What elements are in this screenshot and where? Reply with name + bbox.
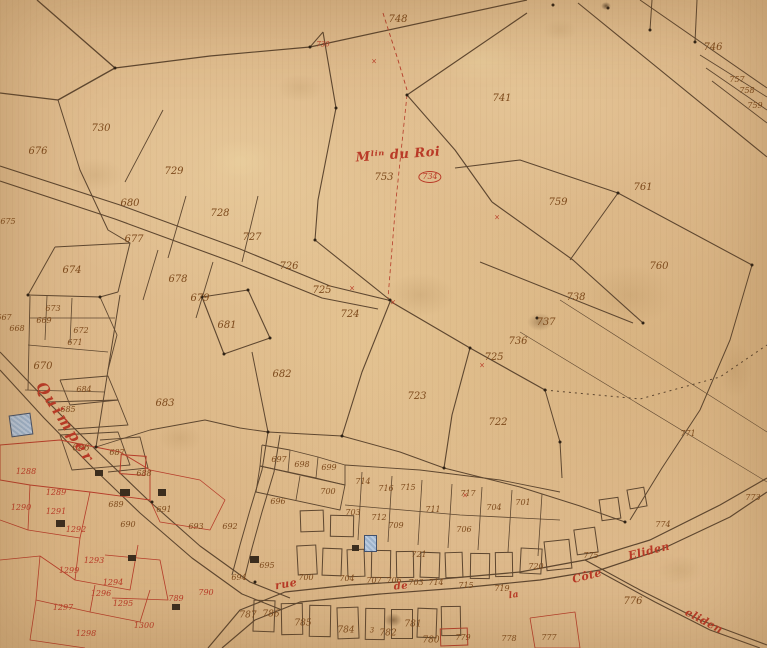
survey-point	[552, 4, 555, 7]
parcel-label: 714	[428, 579, 443, 587]
paper-stain	[158, 423, 202, 453]
parcel-label: 730	[316, 42, 329, 49]
parcel-label: 786	[262, 611, 279, 620]
survey-point	[314, 239, 317, 242]
survey-point	[642, 322, 645, 325]
survey-point	[151, 501, 154, 504]
boundary-line	[168, 196, 186, 258]
house-outline	[495, 552, 513, 577]
parcel-label: 1298	[76, 630, 96, 638]
paper-stain	[657, 555, 703, 585]
boundary-line	[585, 560, 767, 645]
paper-stain	[585, 265, 675, 325]
survey-point	[95, 446, 98, 449]
parcel-label: 689	[108, 501, 123, 509]
survey-point	[335, 107, 338, 110]
parcel-label: 711	[425, 506, 440, 514]
boundary-line	[695, 0, 697, 42]
boundary-line	[268, 432, 342, 436]
parcel-label: 670	[33, 362, 52, 372]
survey-point	[269, 337, 272, 340]
parcel-label: 730	[91, 124, 110, 134]
building-dark	[158, 489, 166, 496]
building-dark	[128, 555, 136, 561]
parcel-label: 1290	[11, 504, 31, 512]
parcel-label: 706	[456, 526, 471, 534]
parcel-label: 709	[388, 522, 403, 530]
parcel-label: 779	[455, 634, 470, 642]
parcel-label: 759	[747, 102, 762, 110]
boundary-line	[480, 262, 633, 323]
parcel-label: 784	[337, 627, 354, 636]
boundary-line	[70, 298, 72, 343]
parcel-label: 707	[366, 577, 381, 585]
building-dark	[95, 470, 103, 476]
parcel-label: 677	[124, 235, 143, 245]
parcel-label: 667	[0, 314, 12, 322]
boundary-line	[448, 484, 452, 548]
parcel-label: 696	[270, 498, 285, 506]
boundary-line	[37, 0, 115, 68]
building-dark	[250, 556, 259, 563]
cadastral-map: 7487467577587597417306767297537347306807…	[0, 0, 767, 648]
survey-point	[617, 192, 620, 195]
house-outline	[470, 553, 490, 579]
parcel-label: 782	[379, 630, 396, 639]
survey-point	[544, 389, 547, 392]
boundary-line	[28, 292, 118, 297]
parcel-label: 681	[217, 321, 236, 331]
parcel-label: 704	[486, 504, 501, 512]
survey-point	[624, 521, 627, 524]
parcel-label: 738	[566, 293, 585, 303]
boundary-line	[342, 436, 444, 468]
parcel-label: 780	[422, 637, 439, 646]
parcel-label: 675	[0, 218, 15, 226]
survey-point	[247, 289, 250, 292]
parcel-label: 1289	[46, 489, 66, 497]
parcel-label: 725	[484, 353, 503, 363]
boundary-line	[388, 95, 407, 298]
parcel-label: ×	[349, 286, 355, 293]
boundary-line	[0, 166, 388, 300]
parcel-label: 673	[45, 305, 60, 313]
boundary-line	[545, 390, 562, 478]
boundary-line	[196, 262, 213, 318]
road-label: de	[393, 581, 408, 592]
parcel-label: 1297	[53, 604, 73, 612]
parcel-label: 3	[370, 628, 374, 635]
building-dark	[352, 545, 359, 551]
parcel-label: 776	[623, 597, 642, 607]
boundary-line	[115, 47, 310, 68]
survey-point	[751, 264, 754, 267]
parcel-label: 722	[488, 418, 507, 428]
parcel-label: 1288	[16, 468, 36, 476]
survey-point	[27, 294, 30, 297]
road-label: Côte	[571, 567, 603, 585]
boundary-line	[407, 13, 527, 95]
parcel-label: 691	[156, 506, 171, 514]
parcel-label: 684	[76, 386, 91, 394]
parcel-label: 699	[321, 464, 336, 472]
boundary-line	[232, 432, 268, 575]
parcel-label: 680	[120, 199, 139, 209]
parcel-label: 676	[28, 147, 47, 157]
boundary-line	[150, 470, 225, 530]
boundary-line	[538, 494, 542, 556]
parcel-label: 687	[109, 449, 124, 457]
boundary-line	[288, 450, 290, 472]
parcel-label: 700	[298, 574, 313, 582]
house-outline	[296, 544, 318, 575]
road-label: rue	[274, 577, 298, 592]
building-blue	[9, 413, 34, 438]
parcel-label: 759	[548, 198, 567, 208]
parcel-label: ×	[479, 363, 485, 370]
house-outline	[599, 497, 622, 522]
parcel-label: ×	[494, 215, 500, 222]
parcel-label: 758	[739, 87, 754, 95]
boundary-line	[0, 520, 28, 530]
boundary-line	[570, 193, 618, 260]
parcel-label: 748	[388, 15, 407, 25]
boundary-line	[478, 487, 482, 550]
parcel-label: 720	[528, 563, 543, 571]
parcel-label: 781	[404, 621, 421, 630]
boundary-line	[0, 68, 115, 100]
parcel-label: 674	[62, 266, 81, 276]
boundary-line	[508, 490, 512, 552]
paper-stain	[543, 19, 577, 41]
house-outline	[300, 510, 325, 533]
parcel-label: 728	[210, 209, 229, 219]
parcel-label: 703	[345, 509, 360, 517]
parcel-label: 668	[9, 325, 24, 333]
paper-stain	[385, 273, 455, 317]
boundary-line	[520, 332, 767, 482]
house-outline	[371, 550, 391, 578]
parcel-label: 716	[378, 485, 393, 493]
parcel-label: 701	[515, 499, 530, 507]
parcel-label: 790	[198, 589, 213, 597]
parcel-label: 695	[259, 562, 274, 570]
parcel-label: 692	[222, 523, 237, 531]
survey-point	[99, 296, 102, 299]
parcel-label: 1293	[84, 557, 104, 565]
building-dark	[120, 489, 130, 496]
boundary-line	[545, 345, 767, 399]
road-label: la	[508, 591, 519, 601]
parcel-label: 741	[492, 94, 511, 104]
parcel-label: 729	[164, 167, 183, 177]
parcel-label: 773	[745, 494, 760, 502]
building-blue	[364, 535, 377, 552]
parcel-label: 787	[239, 612, 256, 621]
boundary-line	[316, 457, 318, 478]
boundary-line	[492, 202, 643, 323]
boundary-line	[444, 348, 470, 468]
parcel-label: 721	[411, 551, 426, 559]
building-dark	[172, 604, 180, 610]
parcel-label: 789	[168, 595, 183, 603]
boundary-line	[342, 302, 390, 436]
parcel-label: 746	[703, 43, 722, 53]
survey-point	[559, 441, 562, 444]
house-outline	[309, 605, 332, 637]
house-outline	[544, 539, 573, 572]
parcel-label: 1300	[134, 622, 154, 630]
parcel-label: 704	[339, 575, 354, 583]
boundary-line	[100, 297, 117, 370]
road-label: eliden	[683, 607, 724, 636]
boundary-line	[310, 0, 527, 47]
paper-stain	[210, 140, 270, 180]
parcel-label: 683	[155, 399, 174, 409]
parcel-label: 703	[408, 579, 423, 587]
survey-point	[223, 353, 226, 356]
survey-point	[694, 41, 697, 44]
parcel-label: 669	[36, 317, 51, 325]
building-dark	[56, 520, 65, 527]
boundary-line	[96, 420, 268, 447]
survey-point	[443, 467, 446, 470]
parcel-label: 679	[190, 294, 209, 304]
parcel-label: 760	[649, 262, 668, 272]
parcel-label: 712	[371, 514, 386, 522]
parcel-label: 682	[272, 370, 291, 380]
parcel-label: 761	[633, 183, 652, 193]
boundary-line	[242, 196, 258, 262]
parcel-label: 724	[340, 310, 359, 320]
parcel-label: 726	[279, 262, 298, 272]
parcel-label: 777	[541, 634, 556, 642]
boundary-line	[530, 612, 580, 648]
house-outline	[347, 549, 366, 578]
parcel-label: 723	[407, 392, 426, 402]
parcel-label: 736	[508, 337, 527, 347]
boundary-line	[650, 0, 652, 30]
parcel-label: 734	[418, 171, 441, 183]
parcel-label: 671	[67, 339, 82, 347]
parcel-label: ×	[462, 493, 468, 500]
parcel-label: 753	[374, 173, 393, 183]
boundary-line	[252, 352, 268, 432]
survey-point	[406, 94, 409, 97]
parcel-label: 700	[320, 488, 335, 496]
parcel-label: 1299	[59, 567, 79, 575]
boundary-line	[418, 480, 422, 545]
boundary-line	[315, 32, 336, 240]
parcel-label: 690	[120, 521, 135, 529]
parcel-label: 693	[188, 523, 203, 531]
parcel-label: 678	[168, 275, 187, 285]
parcel-label: ×	[390, 300, 396, 307]
boundary-line	[455, 160, 752, 265]
survey-point	[649, 29, 652, 32]
parcel-label: 785	[294, 620, 311, 629]
boundary-line	[345, 465, 560, 492]
boundary-line	[560, 300, 767, 432]
parcel-label: 694	[231, 574, 246, 582]
paper-stain	[718, 342, 752, 398]
parcel-label: 1295	[113, 600, 133, 608]
parcel-label: 775	[583, 552, 598, 560]
parcel-label: 778	[501, 635, 516, 643]
parcel-label: 715	[458, 582, 473, 590]
boundary-line	[58, 100, 130, 243]
survey-point	[309, 46, 312, 49]
parcel-label: 727	[242, 233, 261, 243]
road-label: Eliden	[627, 541, 671, 562]
boundary-line	[630, 265, 752, 520]
parcel-label: 725	[312, 286, 331, 296]
parcel-label: 1294	[103, 579, 123, 587]
parcel-label: 774	[655, 521, 670, 529]
parcel-label: 771	[680, 430, 695, 438]
survey-point	[254, 581, 257, 584]
road-label: Mˡⁱⁿ du Roi	[355, 146, 440, 165]
boundary-line	[143, 250, 158, 300]
parcel-label: 715	[400, 484, 415, 492]
parcel-label: 672	[73, 327, 88, 335]
boundary-line	[28, 296, 30, 390]
parcel-label: 688	[136, 470, 151, 478]
boundary-line	[296, 476, 300, 500]
house-outline	[445, 552, 464, 579]
parcel-label: 737	[536, 318, 555, 328]
paper-stain	[440, 35, 520, 85]
paper-stain	[68, 158, 123, 192]
survey-point	[267, 431, 270, 434]
parcel-label: ×	[371, 59, 377, 66]
parcel-label: 1292	[66, 526, 86, 534]
paper-stain	[277, 74, 323, 102]
parcel-label: 757	[729, 76, 744, 84]
parcel-label: 1296	[91, 590, 111, 598]
survey-point	[341, 435, 344, 438]
parcel-label: 1291	[46, 508, 66, 516]
house-outline	[322, 548, 343, 577]
parcel-label: 698	[294, 461, 309, 469]
boundary-line	[96, 295, 120, 447]
boundary-line	[28, 247, 55, 295]
survey-point	[469, 347, 472, 350]
house-outline	[330, 515, 354, 537]
parcel-label: 697	[271, 456, 286, 464]
survey-point	[114, 67, 117, 70]
house-outline	[626, 487, 647, 510]
boundary-line	[125, 110, 163, 182]
survey-point	[607, 7, 610, 10]
boundary-line	[600, 572, 760, 648]
parcel-label: 714	[355, 478, 370, 486]
